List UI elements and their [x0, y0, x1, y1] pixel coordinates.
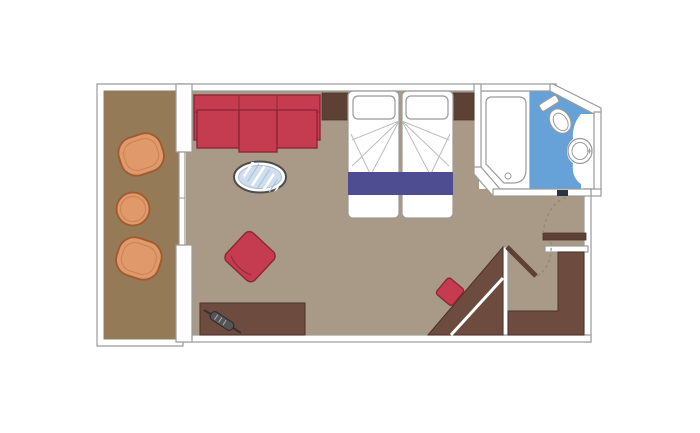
sofa-cushion — [277, 110, 317, 148]
bottom-wall — [177, 335, 591, 342]
sofa-cushion — [197, 110, 239, 148]
left-wall-upper — [176, 84, 192, 152]
pillow-left — [353, 96, 395, 119]
pillow-right — [406, 96, 448, 119]
floor-plan-svg — [0, 0, 700, 433]
side-table-right — [452, 93, 474, 120]
washbasin — [568, 139, 592, 164]
vanity-desk — [200, 303, 305, 335]
wardrobe-divider-wall — [503, 247, 508, 335]
right-wall-upper — [594, 112, 601, 193]
side-table-left — [322, 93, 348, 120]
sofa — [194, 95, 320, 152]
bathroom-bottom-wall — [493, 189, 591, 196]
floor-plan-page — [0, 0, 700, 433]
open-door-leaf — [543, 233, 586, 240]
bed-runner — [348, 172, 453, 195]
top-wall — [177, 84, 556, 91]
bathtub — [486, 97, 526, 183]
left-wall-lower — [176, 245, 192, 342]
right-wall-lower — [584, 189, 591, 342]
bathroom-door-threshold — [557, 190, 568, 196]
bathroom-left-wall — [474, 84, 481, 171]
balcony-table — [117, 193, 150, 226]
sofa-cushion — [239, 110, 277, 152]
